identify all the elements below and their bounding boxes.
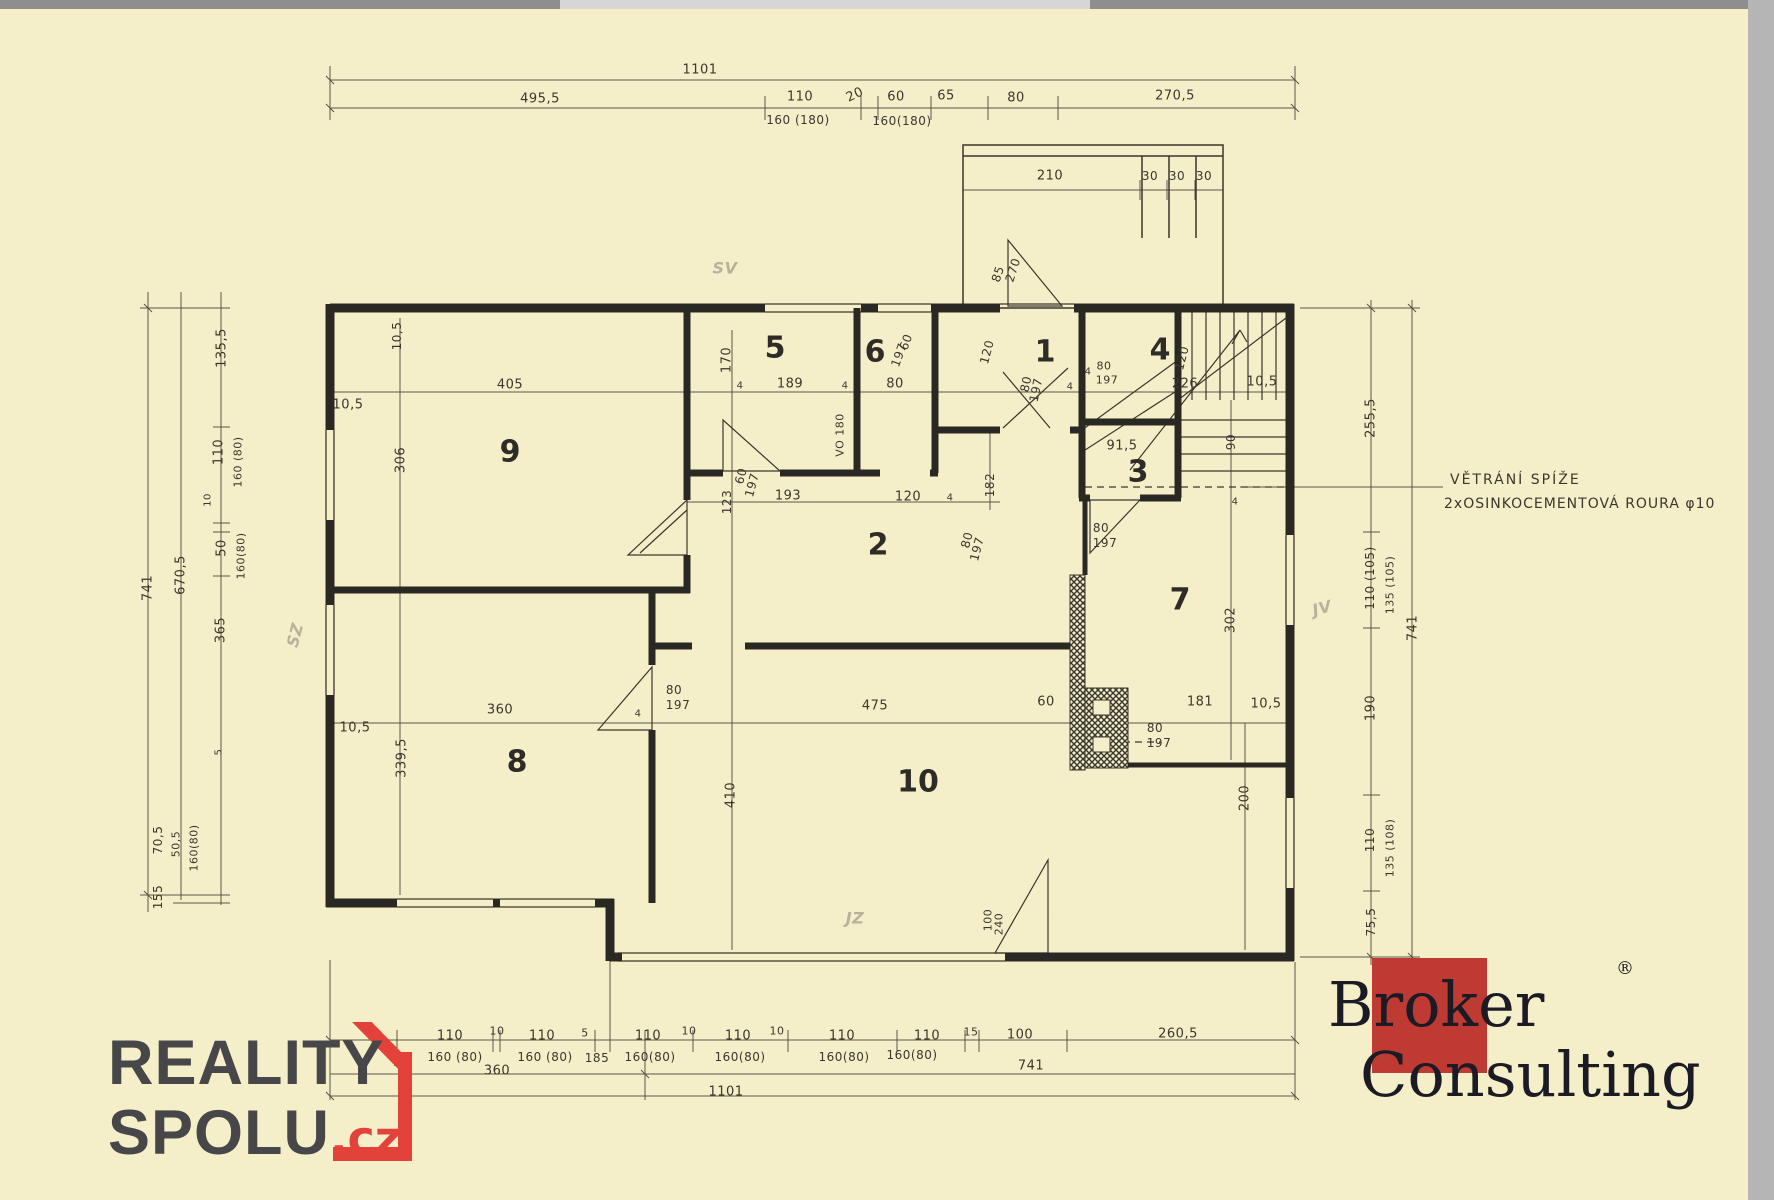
chimney-hatch [1070,575,1128,770]
reality-wordmark: REALITY [108,1030,385,1096]
outer-walls [326,304,1294,961]
interior-walls [330,308,1290,903]
broker-wordmark: Broker [1328,968,1544,1041]
reality-spolu-logo: REALITY SPOLU.cz [104,1022,434,1192]
broker-consulting-logo: Broker ® Consulting [1320,940,1750,1130]
cz-tld: .cz [330,1111,402,1165]
doors-and-stairs [598,240,1290,953]
terrace-outline [963,145,1223,308]
registered-mark: ® [1616,958,1634,979]
windows [326,304,1294,961]
scanned-floorplan-page: 1101495,5110160 (180)2060160(180)6580270… [0,0,1774,1200]
consulting-wordmark: Consulting [1360,1038,1701,1111]
dimension-lines [140,66,1443,1100]
spolu-wordmark: SPOLU [108,1098,330,1168]
vent-annotation-line1: VĚTRÁNÍ SPÍŽE [1450,472,1581,488]
vent-annotation-line2: 2xOSINKOCEMENTOVÁ ROURA φ10 [1444,496,1715,512]
